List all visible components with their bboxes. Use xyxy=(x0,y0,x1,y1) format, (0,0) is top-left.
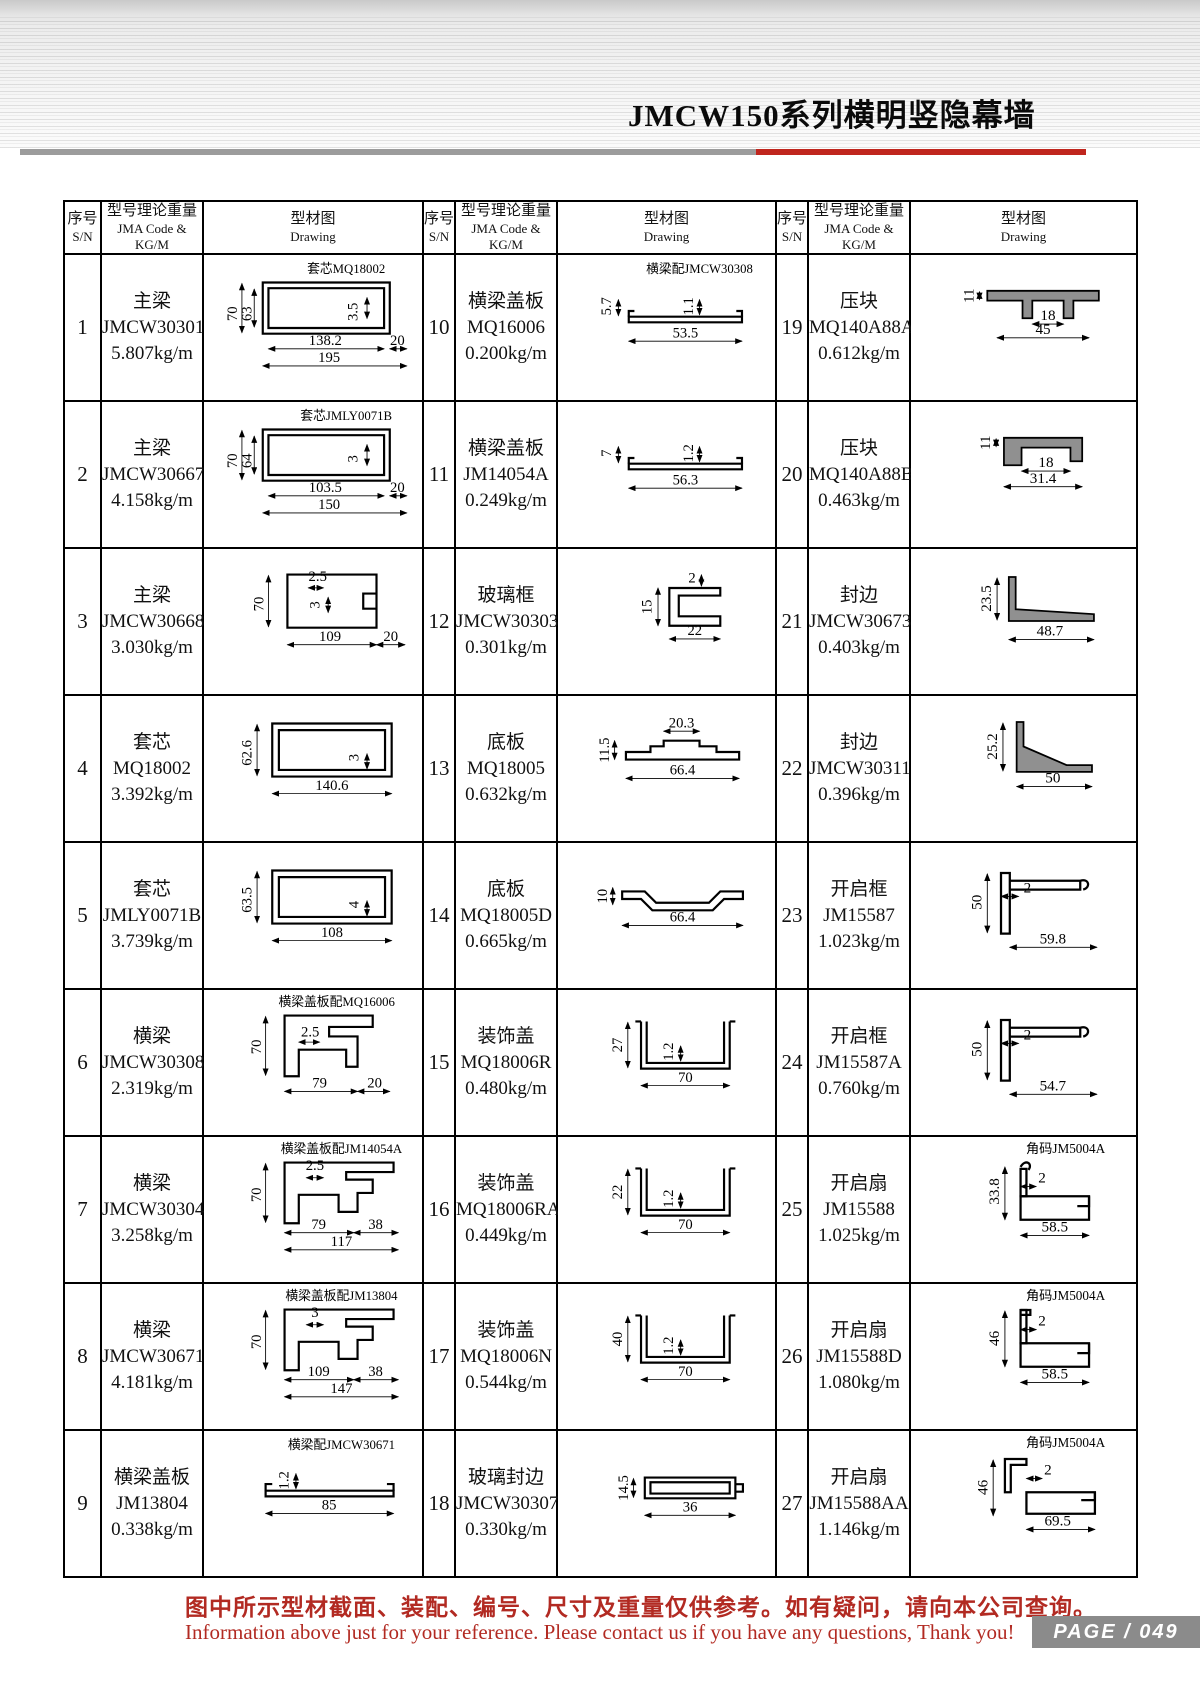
dimension-label: 22 xyxy=(687,623,702,639)
dimension-label: 58.5 xyxy=(1042,1366,1069,1383)
sn-cell: 19 xyxy=(776,254,808,401)
sn-cell: 12 xyxy=(423,548,455,695)
profile-code: JM15588D xyxy=(809,1344,909,1370)
code-cell: 装饰盖MQ18006RA0.449kg/m xyxy=(455,1136,557,1283)
profile-outline xyxy=(641,1021,730,1068)
profile-drawing: 46269.5角码JM5004A xyxy=(911,1431,1136,1576)
drawing-cell: 14.536 xyxy=(557,1430,776,1577)
profile-drawing: 14.536 xyxy=(558,1431,775,1576)
profile-name: 开启扇 xyxy=(809,1465,909,1491)
profile-outline xyxy=(1080,1027,1088,1036)
profile-name: 封边 xyxy=(809,583,909,609)
profile-outline xyxy=(266,1491,394,1497)
dimension-label: 2.5 xyxy=(309,569,327,585)
drawing-annotation: 横梁盖板配MQ16006 xyxy=(278,995,395,1009)
profile-outline xyxy=(1009,577,1094,621)
dimension-label: 195 xyxy=(318,350,340,366)
table-row: 1主梁JMCW303015.807kg/m70633.5138.219520套芯… xyxy=(64,254,1137,401)
profile-name: 装饰盖 xyxy=(456,1318,556,1344)
profile-name: 横梁盖板 xyxy=(456,436,556,462)
profile-drawing: 111831.4 xyxy=(911,402,1136,547)
drawing-cell: 50259.8 xyxy=(910,842,1137,989)
profile-code: MQ140A88B xyxy=(809,462,909,488)
dimension-label: 69.5 xyxy=(1044,1513,1071,1530)
dimension-label: 63 xyxy=(239,306,255,321)
code-cell: 底板MQ180050.632kg/m xyxy=(455,695,557,842)
sn-cell: 20 xyxy=(776,401,808,548)
profile-weight: 0.544kg/m xyxy=(456,1370,556,1396)
sn-cell: 5 xyxy=(64,842,101,989)
dimension-label: 1.2 xyxy=(661,1337,677,1355)
profile-drawing: 401.270 xyxy=(558,1284,775,1429)
profile-weight: 0.463kg/m xyxy=(809,488,909,514)
profile-outline xyxy=(626,741,739,760)
dimension-label: 63.5 xyxy=(239,887,255,913)
profile-outline xyxy=(285,1163,394,1224)
drawing-annotation: 角码JM5004A xyxy=(1026,1435,1106,1450)
profile-name: 主梁 xyxy=(102,436,202,462)
dimension-label: 18 xyxy=(1038,454,1053,471)
profile-name: 主梁 xyxy=(102,583,202,609)
drawing-cell: 37010938147横梁盖板配JM13804 xyxy=(203,1283,423,1430)
sn-cell: 17 xyxy=(423,1283,455,1430)
profile-outline xyxy=(263,282,390,333)
profile-weight: 0.338kg/m xyxy=(102,1517,202,1543)
drawing-annotation: 角码JM5004A xyxy=(1026,1141,1106,1156)
dimension-label: 20 xyxy=(383,629,398,645)
dimension-label: 46 xyxy=(974,1479,991,1495)
dimension-label: 2 xyxy=(688,570,695,586)
dimension-label: 11 xyxy=(977,435,994,450)
drawing-annotation: 套芯JMLY0071B xyxy=(300,408,392,423)
code-cell: 套芯JMLY0071B3.739kg/m xyxy=(101,842,203,989)
profile-weight: 3.030kg/m xyxy=(102,635,202,661)
dimension-label: 22 xyxy=(610,1185,626,1200)
profile-weight: 0.301kg/m xyxy=(456,635,556,661)
profile-name: 开启框 xyxy=(809,877,909,903)
profile-weight: 0.449kg/m xyxy=(456,1223,556,1249)
dimension-label: 150 xyxy=(318,497,340,513)
header-sn: 序号S/N xyxy=(776,201,808,254)
profile-weight: 0.249kg/m xyxy=(456,488,556,514)
profile-drawing: 1066.4 xyxy=(558,843,775,988)
header-drawing: 型材图Drawing xyxy=(203,201,423,254)
code-cell: 横梁JMCW303082.319kg/m xyxy=(101,989,203,1136)
dimension-label: 7 xyxy=(599,450,615,457)
dimension-label: 117 xyxy=(331,1234,352,1250)
profile-drawing: 70633.5138.219520套芯MQ18002 xyxy=(204,255,422,400)
dimension-label: 48.7 xyxy=(1037,623,1064,640)
table-row: 9横梁盖板JM138040.338kg/m1.285横梁配JMCW3067118… xyxy=(64,1430,1137,1577)
code-cell: 横梁JMCW303043.258kg/m xyxy=(101,1136,203,1283)
sn-cell: 3 xyxy=(64,548,101,695)
profile-code: JM13804 xyxy=(102,1491,202,1517)
dimension-label: 70 xyxy=(678,1217,693,1233)
profile-outline xyxy=(363,594,376,609)
profile-outline xyxy=(279,877,385,917)
drawing-annotation: 横梁配JMCW30671 xyxy=(288,1438,395,1452)
sn-cell: 4 xyxy=(64,695,101,842)
dimension-label: 38 xyxy=(368,1364,383,1380)
drawing-cell: 50254.7 xyxy=(910,989,1137,1136)
profile-name: 套芯 xyxy=(102,877,202,903)
drawing-cell: 33.8258.5角码JM5004A xyxy=(910,1136,1137,1283)
dimension-label: 40 xyxy=(610,1332,626,1347)
dimension-label: 108 xyxy=(321,925,343,941)
profile-drawing: 46258.5角码JM5004A xyxy=(911,1284,1136,1429)
dimension-label: 11.5 xyxy=(597,738,613,763)
profile-name: 横梁 xyxy=(102,1024,202,1050)
profile-weight: 3.258kg/m xyxy=(102,1223,202,1249)
dimension-label: 1.2 xyxy=(661,1190,677,1208)
profile-drawing: 71.256.3 xyxy=(558,402,775,547)
dimension-label: 64 xyxy=(239,453,255,468)
sn-cell: 22 xyxy=(776,695,808,842)
dimension-label: 70 xyxy=(249,1187,265,1202)
sn-cell: 26 xyxy=(776,1283,808,1430)
dimension-label: 138.2 xyxy=(309,333,342,349)
profile-code: JMCW30667 xyxy=(102,462,202,488)
header-code: 型号理论重量JMA Code & KG/M xyxy=(808,201,910,254)
sn-cell: 8 xyxy=(64,1283,101,1430)
dimension-label: 53.5 xyxy=(673,325,699,341)
dimension-label: 23.5 xyxy=(978,585,995,612)
profile-code: MQ18002 xyxy=(102,756,202,782)
profile-code: JMCW30307 xyxy=(456,1491,556,1517)
dimension-label: 70 xyxy=(249,1334,265,1349)
profile-weight: 5.807kg/m xyxy=(102,341,202,367)
drawing-cell: 21522 xyxy=(557,548,776,695)
profile-name: 主梁 xyxy=(102,289,202,315)
profile-code: JM15587A xyxy=(809,1050,909,1076)
dimension-label: 2 xyxy=(1024,1027,1032,1044)
profile-drawing: 70643103.515020套芯JMLY0071B xyxy=(204,402,422,547)
dimension-label: 1.2 xyxy=(276,1471,292,1489)
table-row: 7横梁JMCW303043.258kg/m2.5707938117横梁盖板配JM… xyxy=(64,1136,1137,1283)
dimension-label: 20.3 xyxy=(669,715,695,731)
profile-outline xyxy=(650,1482,729,1493)
profile-drawing: 2.5707938117横梁盖板配JM14054A xyxy=(204,1137,422,1282)
code-cell: 玻璃封边JMCW303070.330kg/m xyxy=(455,1430,557,1577)
dimension-label: 85 xyxy=(322,1498,337,1514)
sn-cell: 6 xyxy=(64,989,101,1136)
dimension-label: 50 xyxy=(1045,770,1060,787)
drawing-cell: 702.5310920 xyxy=(203,548,423,695)
dimension-label: 27 xyxy=(610,1038,626,1053)
drawing-cell: 71.256.3 xyxy=(557,401,776,548)
code-cell: 开启扇JM155881.025kg/m xyxy=(808,1136,910,1283)
dimension-label: 20 xyxy=(367,1076,382,1092)
code-cell: 套芯MQ180023.392kg/m xyxy=(101,695,203,842)
profile-code: MQ16006 xyxy=(456,315,556,341)
profile-outline xyxy=(1081,1492,1095,1500)
drawing-cell: 1066.4 xyxy=(557,842,776,989)
dimension-label: 70 xyxy=(678,1364,693,1380)
profile-table: 序号S/N型号理论重量JMA Code & KG/M型材图Drawing序号S/… xyxy=(63,200,1138,1578)
dimension-label: 50 xyxy=(968,1042,985,1057)
sn-cell: 10 xyxy=(423,254,455,401)
dimension-label: 59.8 xyxy=(1040,930,1067,947)
profile-drawing: 23.548.7 xyxy=(911,549,1136,694)
profile-drawing: 21522 xyxy=(558,549,775,694)
profile-code: JMCW30311 xyxy=(809,756,909,782)
sn-cell: 13 xyxy=(423,695,455,842)
page-title: JMCW150系列横明竖隐幕墙 xyxy=(628,90,1036,135)
code-cell: 主梁JMCW303015.807kg/m xyxy=(101,254,203,401)
code-cell: 开启扇JM15588AA1.146kg/m xyxy=(808,1430,910,1577)
profile-outline xyxy=(1026,1492,1094,1514)
sn-cell: 2 xyxy=(64,401,101,548)
profile-outline xyxy=(285,1016,373,1077)
header-sn: 序号S/N xyxy=(423,201,455,254)
drawing-cell: 23.548.7 xyxy=(910,548,1137,695)
profile-name: 开启框 xyxy=(809,1024,909,1050)
profile-code: JM15587 xyxy=(809,903,909,929)
dimension-label: 54.7 xyxy=(1040,1077,1067,1094)
dimension-label: 36 xyxy=(683,1500,698,1516)
sn-cell: 23 xyxy=(776,842,808,989)
profile-name: 横梁 xyxy=(102,1171,202,1197)
dimension-label: 70 xyxy=(678,1070,693,1086)
profile-code: JMCW30308 xyxy=(102,1050,202,1076)
sn-cell: 7 xyxy=(64,1136,101,1283)
dimension-label: 103.5 xyxy=(309,480,342,496)
profile-code: JM14054A xyxy=(456,462,556,488)
drawing-cell: 20.311.566.4 xyxy=(557,695,776,842)
profile-weight: 1.023kg/m xyxy=(809,929,909,955)
profile-outline xyxy=(1021,1343,1089,1366)
profile-drawing: 50259.8 xyxy=(911,843,1136,988)
profile-outline xyxy=(1005,1459,1027,1492)
dimension-label: 5.7 xyxy=(599,297,615,315)
drawing-cell: 1.285横梁配JMCW30671 xyxy=(203,1430,423,1577)
profile-outline xyxy=(629,464,742,470)
sn-cell: 16 xyxy=(423,1136,455,1283)
profile-drawing: 50254.7 xyxy=(911,990,1136,1135)
table-header: 序号S/N型号理论重量JMA Code & KG/M型材图Drawing序号S/… xyxy=(64,201,1137,254)
code-cell: 封边JMCW303110.396kg/m xyxy=(808,695,910,842)
table-row: 3主梁JMCW306683.030kg/m702.531092012玻璃框JMC… xyxy=(64,548,1137,695)
profile-name: 开启扇 xyxy=(809,1171,909,1197)
profile-weight: 0.396kg/m xyxy=(809,782,909,808)
profile-weight: 0.665kg/m xyxy=(456,929,556,955)
profile-name: 装饰盖 xyxy=(456,1024,556,1050)
dimension-label: 2 xyxy=(1044,1462,1052,1479)
dimension-label: 79 xyxy=(312,1076,327,1092)
dimension-label: 20 xyxy=(390,333,405,349)
profile-weight: 0.330kg/m xyxy=(456,1517,556,1543)
sn-cell: 18 xyxy=(423,1430,455,1577)
profile-weight: 2.319kg/m xyxy=(102,1076,202,1102)
profile-code: MQ18006R xyxy=(456,1050,556,1076)
profile-name: 封边 xyxy=(809,730,909,756)
profile-name: 横梁 xyxy=(102,1318,202,1344)
profile-outline xyxy=(641,1315,730,1362)
drawing-cell: 271.270 xyxy=(557,989,776,1136)
profile-drawing: 37010938147横梁盖板配JM13804 xyxy=(204,1284,422,1429)
profile-weight: 3.739kg/m xyxy=(102,929,202,955)
dimension-label: 3 xyxy=(346,754,362,761)
footer-note-cn: 图中所示型材截面、装配、编号、尺寸及重量仅供参考。如有疑问，请向本公司查询。 xyxy=(185,1588,1015,1622)
code-cell: 压块MQ140A88A0.612kg/m xyxy=(808,254,910,401)
profile-outline xyxy=(1021,1196,1089,1219)
profile-name: 压块 xyxy=(809,289,909,315)
drawing-cell: 46258.5角码JM5004A xyxy=(910,1283,1137,1430)
profile-outline xyxy=(272,870,391,923)
code-cell: 横梁JMCW306714.181kg/m xyxy=(101,1283,203,1430)
profile-outline xyxy=(1010,1028,1080,1037)
header-code: 型号理论重量JMA Code & KG/M xyxy=(101,201,203,254)
code-cell: 底板MQ18005D0.665kg/m xyxy=(455,842,557,989)
dimension-label: 3 xyxy=(311,1305,318,1321)
profile-name: 压块 xyxy=(809,436,909,462)
dimension-label: 2 xyxy=(1024,880,1032,897)
profile-name: 底板 xyxy=(456,730,556,756)
profile-outline xyxy=(645,1478,736,1499)
dimension-label: 56.3 xyxy=(673,472,699,488)
profile-outline xyxy=(1010,881,1080,890)
code-cell: 装饰盖MQ18006R0.480kg/m xyxy=(455,989,557,1136)
dimension-label: 109 xyxy=(319,629,341,645)
dimension-label: 3.5 xyxy=(346,303,362,321)
header-drawing: 型材图Drawing xyxy=(910,201,1137,254)
profile-outline xyxy=(263,429,390,480)
profile-name: 横梁盖板 xyxy=(456,289,556,315)
profile-outline xyxy=(1001,1020,1010,1081)
profile-drawing: 702.5310920 xyxy=(204,549,422,694)
dimension-label: 2 xyxy=(1038,1313,1046,1330)
profile-code: JMCW30304 xyxy=(102,1197,202,1223)
profile-code: MQ18006N xyxy=(456,1344,556,1370)
drawing-cell: 70643103.515020套芯JMLY0071B xyxy=(203,401,423,548)
profile-weight: 3.392kg/m xyxy=(102,782,202,808)
profile-outline xyxy=(279,730,385,770)
dimension-label: 3 xyxy=(346,455,362,462)
profile-drawing: 62.63140.6 xyxy=(204,696,422,841)
code-cell: 装饰盖MQ18006N0.544kg/m xyxy=(455,1283,557,1430)
profile-weight: 4.158kg/m xyxy=(102,488,202,514)
header-rule-red xyxy=(756,149,1086,155)
dimension-label: 15 xyxy=(639,600,655,615)
profile-drawing: 33.8258.5角码JM5004A xyxy=(911,1137,1136,1282)
profile-weight: 0.480kg/m xyxy=(456,1076,556,1102)
drawing-cell: 5.71.153.5横梁配JMCW30308 xyxy=(557,254,776,401)
dimension-label: 66.4 xyxy=(670,910,696,926)
table-row: 4套芯MQ180023.392kg/m62.63140.613底板MQ18005… xyxy=(64,695,1137,842)
dimension-label: 38 xyxy=(368,1217,383,1233)
drawing-cell: 62.63140.6 xyxy=(203,695,423,842)
table-row: 8横梁JMCW306714.181kg/m37010938147横梁盖板配JM1… xyxy=(64,1283,1137,1430)
profile-outline xyxy=(641,1168,730,1215)
profile-name: 装饰盖 xyxy=(456,1171,556,1197)
code-cell: 开启框JM15587A0.760kg/m xyxy=(808,989,910,1136)
profile-code: JMCW30671 xyxy=(102,1344,202,1370)
dimension-label: 31.4 xyxy=(1030,470,1057,487)
drawing-annotation: 横梁盖板配JM13804 xyxy=(285,1289,398,1303)
profile-name: 套芯 xyxy=(102,730,202,756)
profile-weight: 4.181kg/m xyxy=(102,1370,202,1396)
dimension-label: 14.5 xyxy=(616,1475,632,1501)
profile-code: JMLY0071B xyxy=(102,903,202,929)
code-cell: 开启扇JM15588D1.080kg/m xyxy=(808,1283,910,1430)
code-cell: 玻璃框JMCW303030.301kg/m xyxy=(455,548,557,695)
code-cell: 封边JMCW306730.403kg/m xyxy=(808,548,910,695)
code-cell: 横梁盖板MQ160060.200kg/m xyxy=(455,254,557,401)
sn-cell: 25 xyxy=(776,1136,808,1283)
profile-name: 底板 xyxy=(456,877,556,903)
dimension-label: 147 xyxy=(330,1381,352,1397)
profile-outline xyxy=(285,1310,394,1371)
profile-outline xyxy=(735,1484,743,1492)
profile-outline xyxy=(669,588,720,626)
profile-outline xyxy=(1080,880,1088,889)
profile-outline xyxy=(647,1315,724,1357)
code-cell: 主梁JMCW306674.158kg/m xyxy=(101,401,203,548)
profile-name: 开启扇 xyxy=(809,1318,909,1344)
sn-cell: 9 xyxy=(64,1430,101,1577)
profile-code: MQ140A88A xyxy=(809,315,909,341)
code-cell: 横梁盖板JM14054A0.249kg/m xyxy=(455,401,557,548)
dimension-label: 109 xyxy=(308,1364,330,1380)
footer-note-en: Information above just for your referenc… xyxy=(185,1620,1015,1645)
profile-drawing: 5.71.153.5横梁配JMCW30308 xyxy=(558,255,775,400)
profile-weight: 1.146kg/m xyxy=(809,1517,909,1543)
dimension-label: 4 xyxy=(346,900,362,908)
sn-cell: 1 xyxy=(64,254,101,401)
dimension-label: 46 xyxy=(986,1330,1003,1346)
dimension-label: 2.5 xyxy=(306,1158,324,1174)
drawing-cell: 63.54108 xyxy=(203,842,423,989)
profile-outline xyxy=(1077,1343,1089,1353)
header-drawing: 型材图Drawing xyxy=(557,201,776,254)
dimension-label: 1.2 xyxy=(661,1043,677,1061)
dimension-label: 11 xyxy=(961,288,978,303)
dimension-label: 140.6 xyxy=(315,778,348,794)
profile-weight: 0.403kg/m xyxy=(809,635,909,661)
code-cell: 压块MQ140A88B0.463kg/m xyxy=(808,401,910,548)
profile-drawing: 702.57920横梁盖板配MQ16006 xyxy=(204,990,422,1135)
profile-code: JM15588AA xyxy=(809,1491,909,1517)
dimension-label: 1.2 xyxy=(681,444,697,462)
profile-drawing: 1.285横梁配JMCW30671 xyxy=(204,1431,422,1576)
dimension-label: 70 xyxy=(249,1040,265,1055)
table-row: 6横梁JMCW303082.319kg/m702.57920横梁盖板配MQ160… xyxy=(64,989,1137,1136)
profile-outline xyxy=(1001,873,1010,934)
profile-drawing: 63.54108 xyxy=(204,843,422,988)
header-row: 序号S/N型号理论重量JMA Code & KG/M型材图Drawing序号S/… xyxy=(64,201,1137,254)
drawing-cell: 401.270 xyxy=(557,1283,776,1430)
profile-name: 玻璃封边 xyxy=(456,1465,556,1491)
header-code: 型号理论重量JMA Code & KG/M xyxy=(455,201,557,254)
dimension-label: 10 xyxy=(595,889,611,904)
drawing-cell: 111831.4 xyxy=(910,401,1137,548)
dimension-label: 45 xyxy=(1035,321,1050,338)
drawing-cell: 25.250 xyxy=(910,695,1137,842)
code-cell: 开启框JM155871.023kg/m xyxy=(808,842,910,989)
profile-outline xyxy=(272,723,391,776)
profile-code: JMCW30301 xyxy=(102,315,202,341)
sn-cell: 14 xyxy=(423,842,455,989)
drawing-cell: 46269.5角码JM5004A xyxy=(910,1430,1137,1577)
profile-code: MQ18006RA xyxy=(456,1197,556,1223)
page-number-box: PAGE / 049 xyxy=(1032,1616,1200,1648)
profile-drawing: 111845 xyxy=(911,255,1136,400)
dimension-label: 70 xyxy=(252,597,268,612)
drawing-cell: 70633.5138.219520套芯MQ18002 xyxy=(203,254,423,401)
profile-drawing: 20.311.566.4 xyxy=(558,696,775,841)
sn-cell: 21 xyxy=(776,548,808,695)
sn-cell: 24 xyxy=(776,989,808,1136)
